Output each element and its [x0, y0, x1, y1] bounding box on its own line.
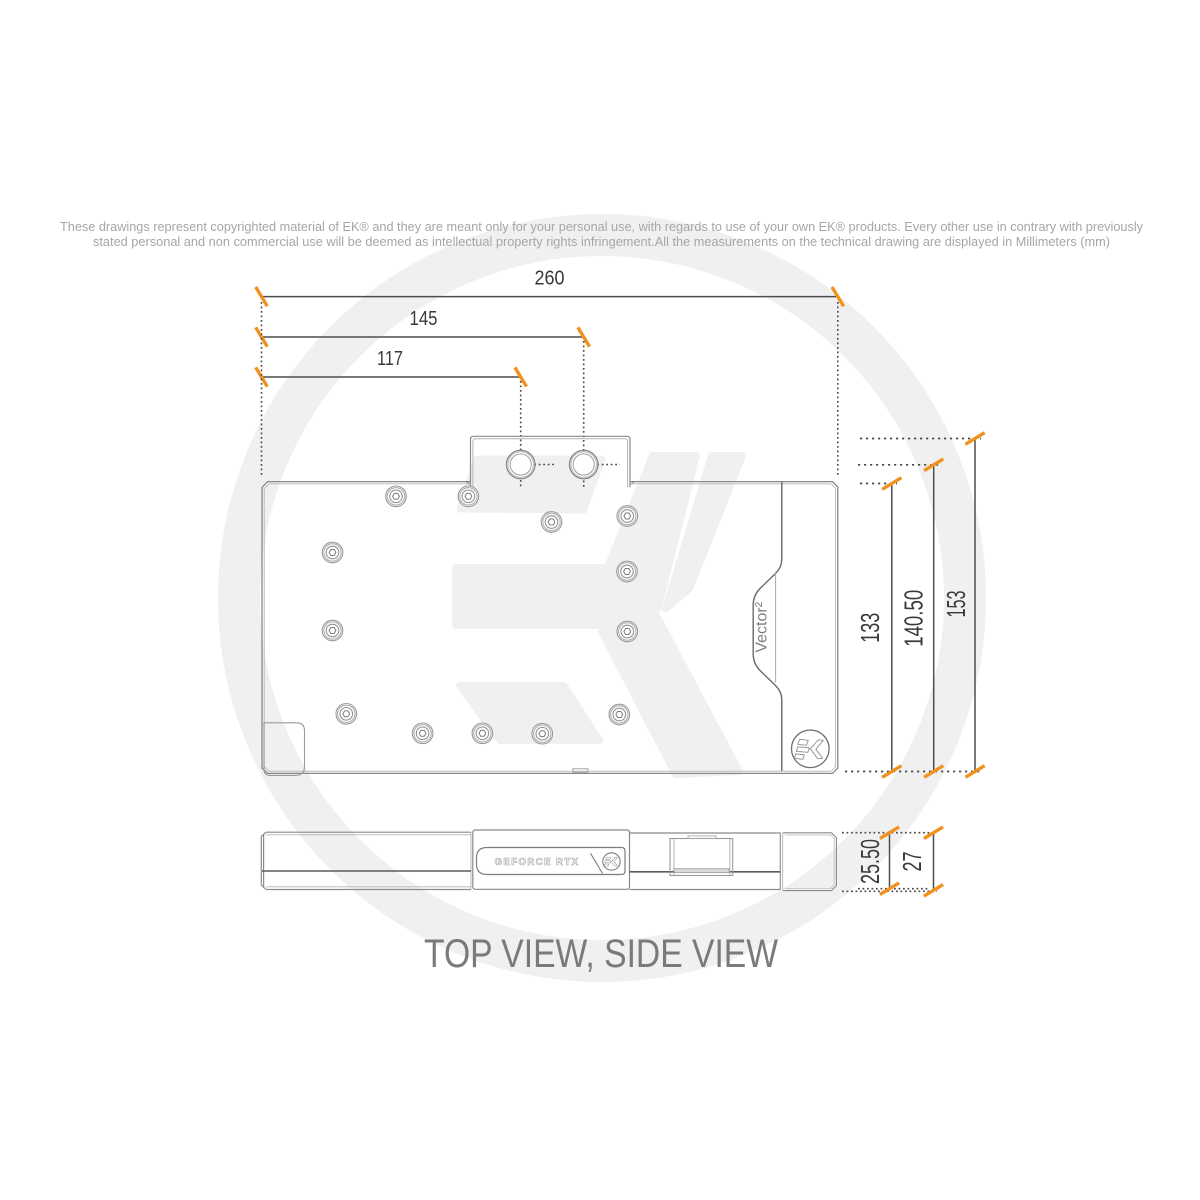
- svg-text:25.50: 25.50: [855, 839, 885, 884]
- svg-text:133: 133: [855, 613, 885, 643]
- svg-text:stated personal and non commer: stated personal and non commercial use w…: [93, 235, 1110, 249]
- svg-text:TOP VIEW, SIDE VIEW: TOP VIEW, SIDE VIEW: [424, 932, 778, 976]
- svg-text:These drawings represent copyr: These drawings represent copyrighted mat…: [60, 220, 1144, 234]
- svg-text:Vector²: Vector²: [754, 601, 771, 652]
- svg-text:27: 27: [897, 852, 927, 872]
- svg-text:145: 145: [410, 308, 438, 330]
- svg-text:153: 153: [941, 591, 971, 618]
- svg-text:117: 117: [377, 348, 403, 370]
- svg-text:260: 260: [535, 268, 565, 290]
- svg-text:140.50: 140.50: [899, 590, 929, 647]
- svg-text:GEFORCE RTX: GEFORCE RTX: [495, 857, 580, 868]
